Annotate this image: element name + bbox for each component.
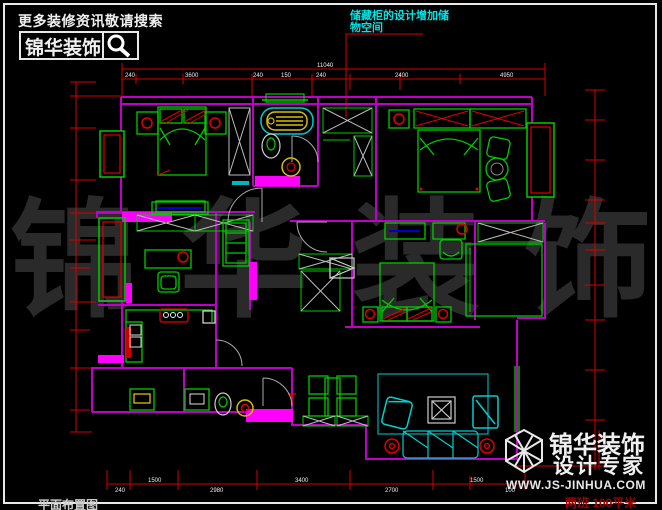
svg-text:设计专家: 设计专家 [553,454,645,478]
svg-text:3400: 3400 [295,478,309,484]
svg-text:240: 240 [316,73,327,79]
svg-text:240: 240 [115,488,126,494]
svg-text:装: 装 [352,190,480,333]
svg-text:3600: 3600 [185,73,199,79]
svg-text:储藏柜的设计增加储: 储藏柜的设计增加储 [350,8,449,22]
svg-text:1500: 1500 [148,478,162,484]
svg-text:饰: 饰 [524,190,652,333]
svg-text:平面布置图: 平面布置图 [38,497,98,510]
svg-text:11040: 11040 [317,63,334,69]
svg-text:4950: 4950 [500,73,514,79]
svg-text:2400: 2400 [395,73,409,79]
svg-text:2980: 2980 [210,488,224,494]
svg-text:更多装修资讯敬请搜索: 更多装修资讯敬请搜索 [18,13,163,29]
svg-text:2700: 2700 [385,488,399,494]
svg-text:1500: 1500 [470,478,484,484]
svg-text:240: 240 [253,73,264,79]
svg-text:物空间: 物空间 [350,20,383,34]
svg-text:锦华装饰: 锦华装饰 [25,36,101,59]
svg-text:150: 150 [281,73,292,79]
svg-text:WWW.JS-JINHUA.COM: WWW.JS-JINHUA.COM [506,478,646,492]
svg-text:240: 240 [125,73,136,79]
svg-text:两班 100平米: 两班 100平米 [565,495,637,510]
